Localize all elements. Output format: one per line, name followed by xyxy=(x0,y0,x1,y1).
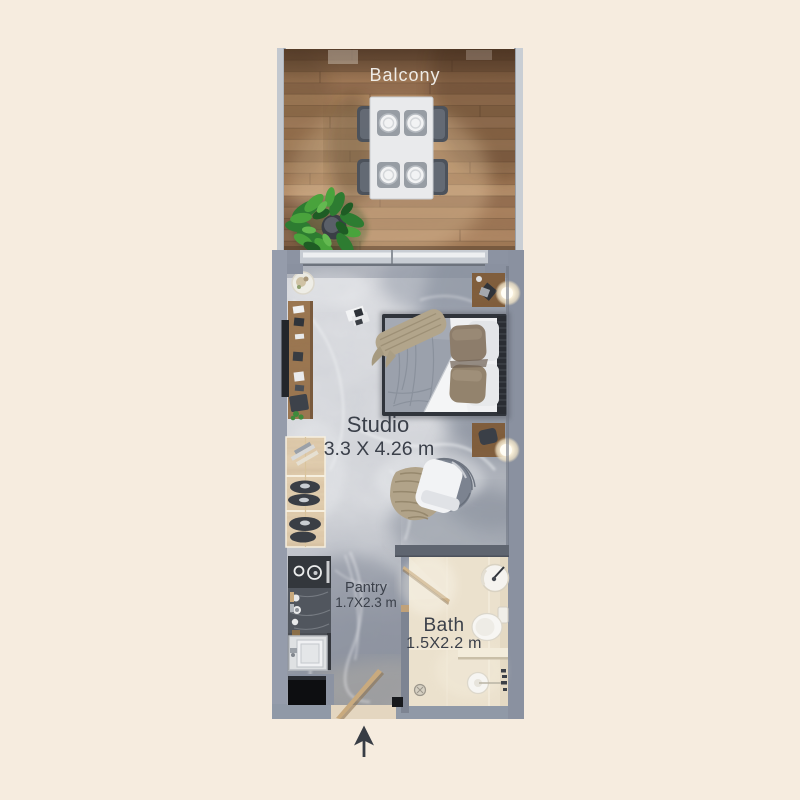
svg-text:Bath: Bath xyxy=(423,615,464,636)
svg-text:Studio: Studio xyxy=(347,412,409,437)
svg-text:3.3 X 4.26 m: 3.3 X 4.26 m xyxy=(324,438,435,460)
svg-text:Balcony: Balcony xyxy=(369,65,440,85)
svg-text:Pantry: Pantry xyxy=(345,580,388,596)
svg-text:1.7X2.3 m: 1.7X2.3 m xyxy=(335,595,397,610)
svg-text:1.5X2.2 m: 1.5X2.2 m xyxy=(406,635,482,652)
